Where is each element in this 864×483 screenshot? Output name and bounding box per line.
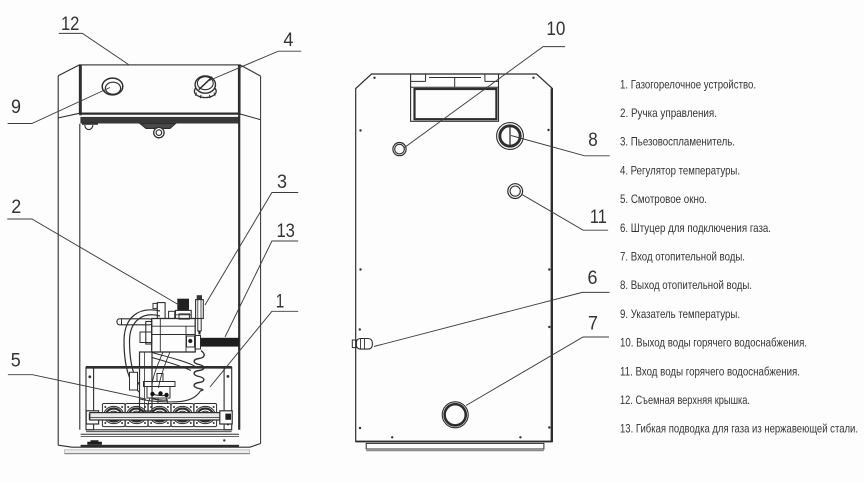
svg-text:12: 12 — [61, 14, 80, 35]
svg-text:12. Съемная верхняя крышка.: 12. Съемная верхняя крышка. — [620, 393, 750, 407]
svg-text:11: 11 — [590, 207, 607, 228]
svg-text:10. Выход воды горячего водосн: 10. Выход воды горячего водоснабжения. — [620, 336, 807, 350]
svg-text:2: 2 — [11, 197, 21, 218]
svg-text:5: 5 — [11, 351, 21, 372]
svg-text:3. Пьезовоспламенитель.: 3. Пьезовоспламенитель. — [620, 135, 735, 149]
svg-text:10: 10 — [546, 19, 565, 40]
svg-text:5. Смотровое окно.: 5. Смотровое окно. — [620, 192, 707, 206]
svg-text:8: 8 — [588, 130, 598, 151]
svg-text:1: 1 — [276, 291, 285, 312]
svg-text:3: 3 — [277, 172, 287, 193]
svg-text:6: 6 — [588, 268, 598, 289]
svg-text:7. Вход отопительной воды.: 7. Вход отопительной воды. — [620, 250, 745, 264]
svg-text:13. Гибкая подводка для газа и: 13. Гибкая подводка для газа из нержавею… — [620, 422, 858, 436]
svg-text:7: 7 — [588, 313, 598, 334]
svg-text:11. Вход воды горячего водосна: 11. Вход воды горячего водоснабжения. — [620, 364, 800, 378]
svg-text:4. Регулятор температуры.: 4. Регулятор температуры. — [620, 163, 740, 177]
svg-text:1. Газогорелочное устройство.: 1. Газогорелочное устройство. — [620, 77, 756, 91]
svg-text:6. Штуцер для подключения газа: 6. Штуцер для подключения газа. — [620, 221, 771, 235]
svg-text:4: 4 — [283, 30, 293, 51]
svg-text:13: 13 — [276, 221, 295, 242]
svg-text:2. Ручка управления.: 2. Ручка управления. — [620, 106, 717, 120]
svg-text:9: 9 — [11, 97, 21, 118]
svg-text:8. Выход отопительной воды.: 8. Выход отопительной воды. — [620, 278, 752, 292]
svg-text:9. Указатель температуры.: 9. Указатель температуры. — [620, 307, 740, 321]
